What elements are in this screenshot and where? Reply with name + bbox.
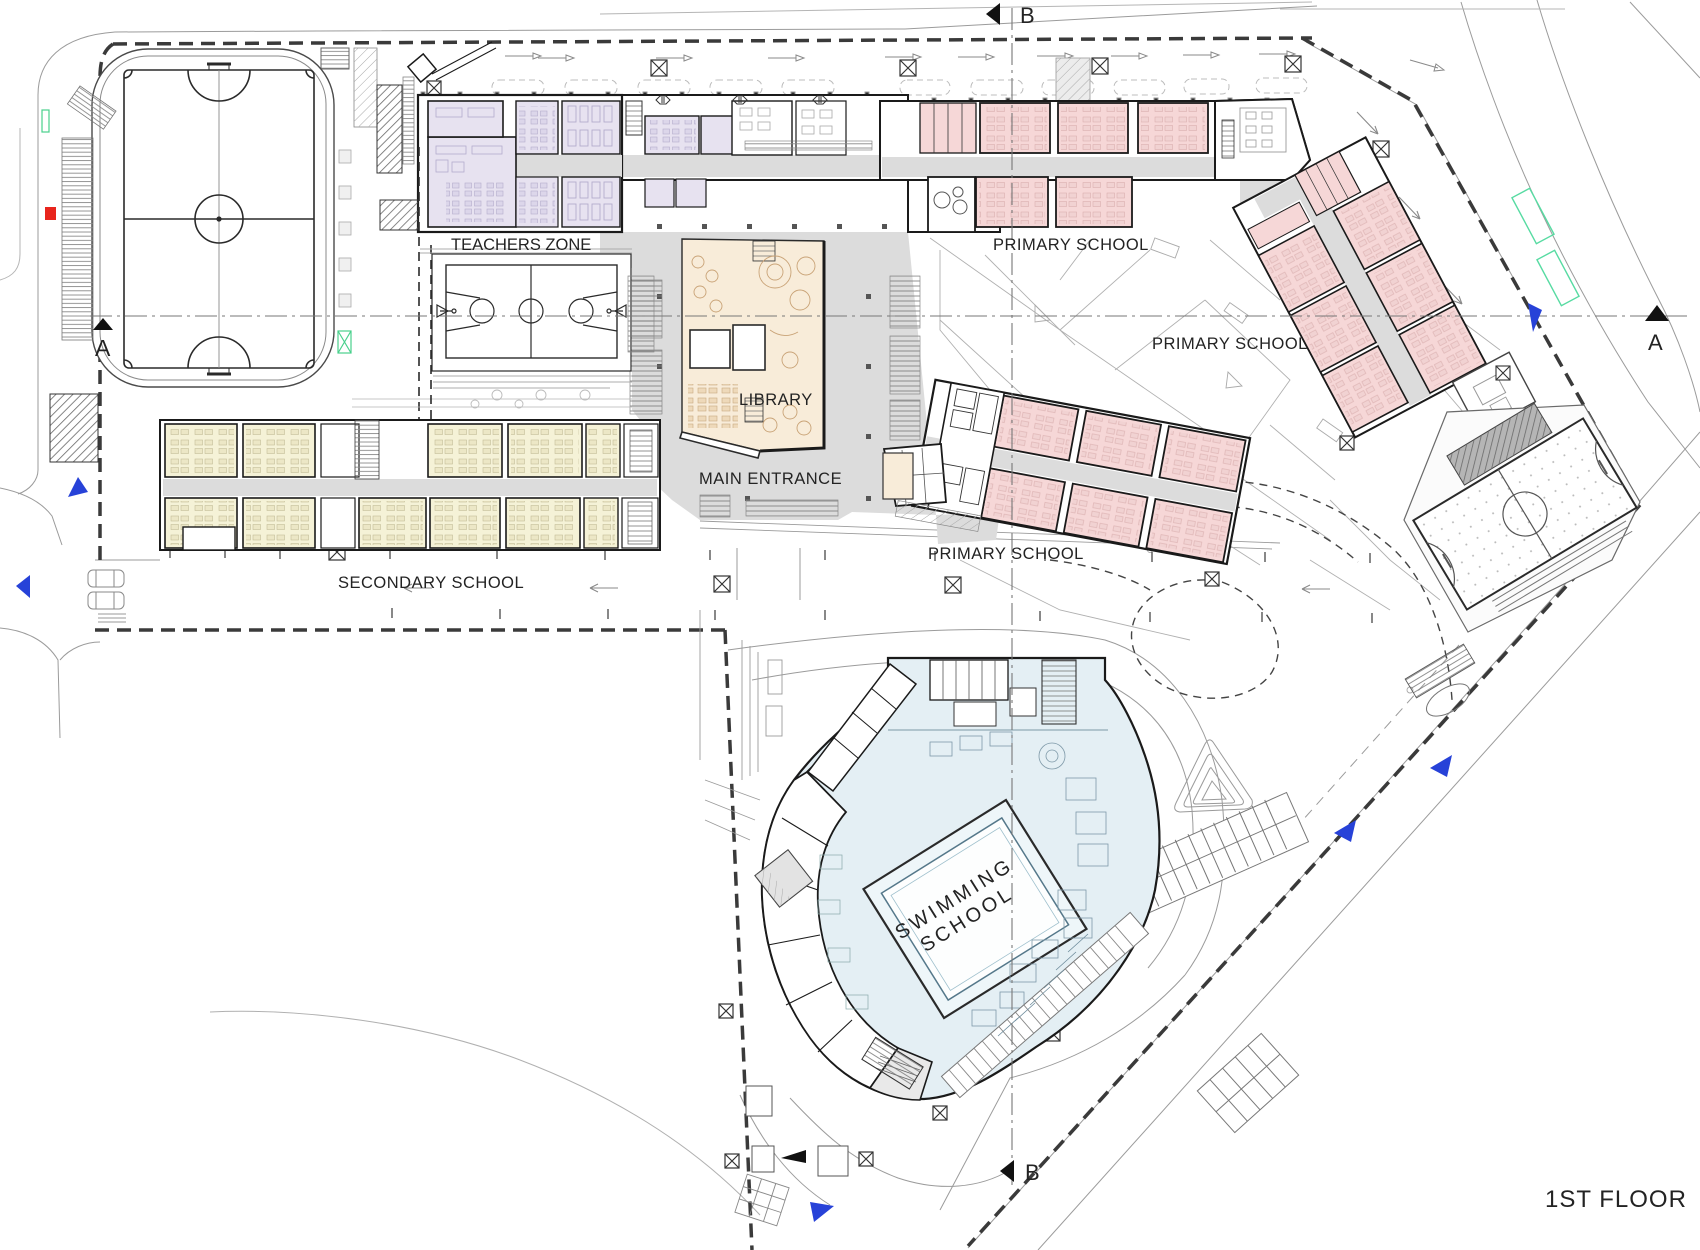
svg-text:PRIMARY SCHOOL: PRIMARY SCHOOL <box>928 545 1084 563</box>
svg-text:TEACHERS ZONE: TEACHERS ZONE <box>451 236 591 254</box>
svg-text:B: B <box>1025 1160 1040 1185</box>
svg-text:PRIMARY SCHOOL: PRIMARY SCHOOL <box>993 236 1149 254</box>
svg-text:A: A <box>95 335 111 361</box>
svg-text:MAIN ENTRANCE: MAIN ENTRANCE <box>699 470 842 488</box>
svg-text:B: B <box>1020 3 1035 28</box>
svg-text:SECONDARY SCHOOL: SECONDARY SCHOOL <box>338 574 524 592</box>
svg-text:PRIMARY SCHOOL: PRIMARY SCHOOL <box>1152 335 1308 353</box>
svg-text:1ST FLOOR: 1ST FLOOR <box>1545 1186 1687 1213</box>
svg-text:A: A <box>1648 330 1663 355</box>
svg-text:LIBRARY: LIBRARY <box>739 391 813 409</box>
